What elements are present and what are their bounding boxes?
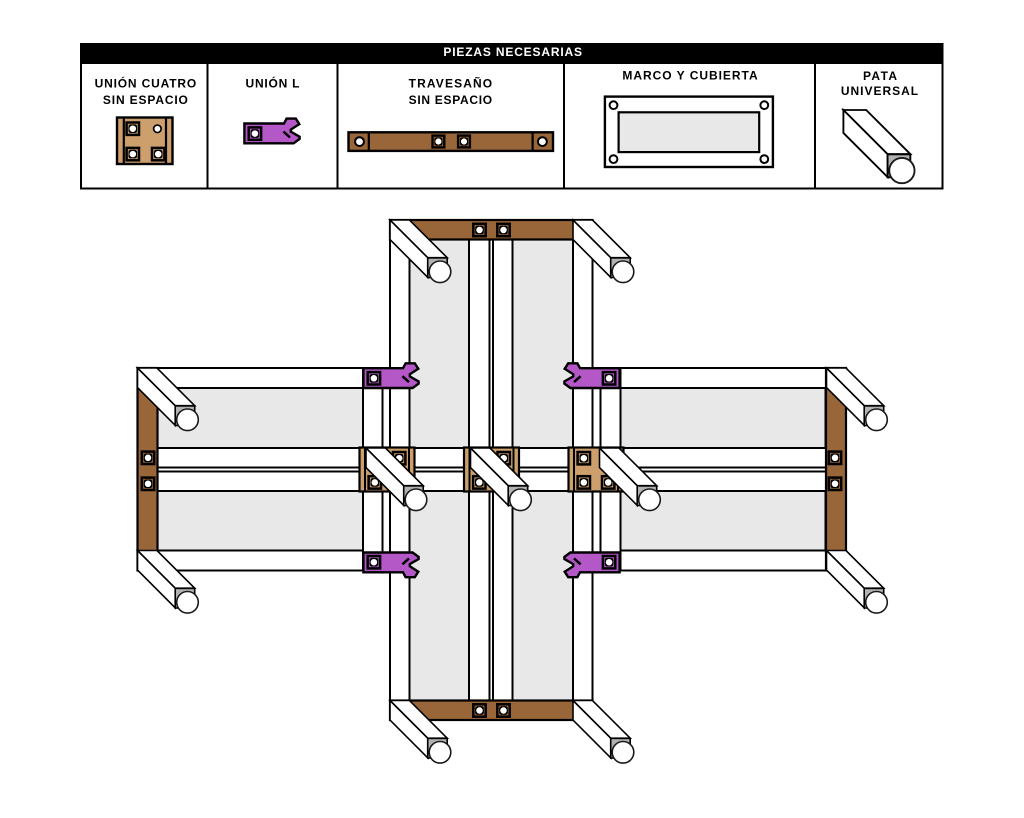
svg-text:UNIVERSAL: UNIVERSAL [841,84,918,98]
svg-text:UNIÓN CUATRO: UNIÓN CUATRO [95,75,197,90]
svg-text:TRAVESAÑO: TRAVESAÑO [409,75,493,90]
svg-text:SIN ESPACIO: SIN ESPACIO [103,93,188,107]
svg-text:SIN ESPACIO: SIN ESPACIO [409,93,493,107]
svg-text:UNIÓN L: UNIÓN L [246,75,300,90]
svg-text:PIEZAS NECESARIAS: PIEZAS NECESARIAS [443,45,582,59]
svg-text:MARCO Y CUBIERTA: MARCO Y CUBIERTA [622,69,758,83]
svg-text:PATA: PATA [863,69,897,83]
